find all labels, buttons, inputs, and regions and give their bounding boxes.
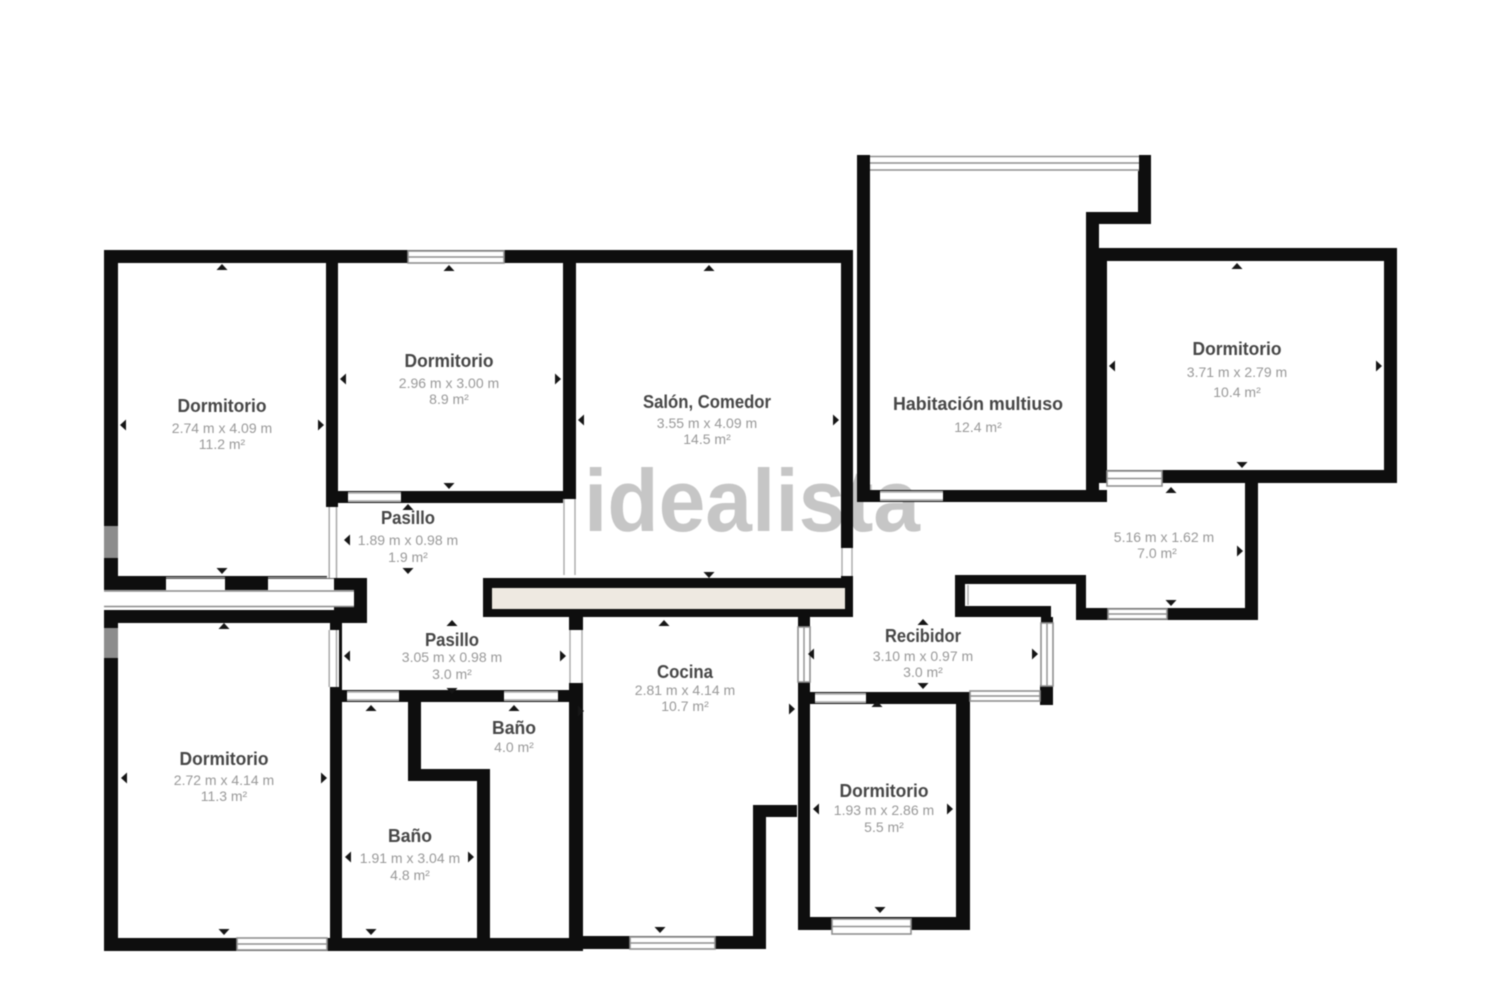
svg-text:Dormitorio: Dormitorio xyxy=(405,351,494,371)
svg-text:2.72 m x 4.14 m: 2.72 m x 4.14 m xyxy=(174,772,274,788)
svg-text:Pasillo: Pasillo xyxy=(425,630,479,650)
svg-text:11.3 m²: 11.3 m² xyxy=(201,788,248,804)
svg-text:Cocina: Cocina xyxy=(657,662,714,682)
svg-text:4.8 m²: 4.8 m² xyxy=(390,867,430,883)
svg-text:3.10 m x 0.97 m: 3.10 m x 0.97 m xyxy=(873,648,973,664)
svg-text:Pasillo: Pasillo xyxy=(381,508,435,528)
svg-text:Dormitorio: Dormitorio xyxy=(1193,339,1282,359)
svg-text:1.91 m x 3.04 m: 1.91 m x 3.04 m xyxy=(360,850,460,866)
svg-text:1.93 m x 2.86 m: 1.93 m x 2.86 m xyxy=(834,802,934,818)
svg-text:5.16 m x 1.62 m: 5.16 m x 1.62 m xyxy=(1114,529,1214,545)
svg-text:3.55 m x 4.09 m: 3.55 m x 4.09 m xyxy=(657,415,757,431)
svg-text:Baño: Baño xyxy=(388,826,432,846)
svg-text:8.9 m²: 8.9 m² xyxy=(429,391,469,407)
svg-text:Dormitorio: Dormitorio xyxy=(840,781,929,801)
svg-text:Recibidor: Recibidor xyxy=(885,626,961,646)
svg-text:Dormitorio: Dormitorio xyxy=(180,749,269,769)
svg-text:14.5 m²: 14.5 m² xyxy=(683,431,731,447)
svg-text:Habitación multiuso: Habitación multiuso xyxy=(893,394,1063,414)
svg-text:2.74 m x 4.09 m: 2.74 m x 4.09 m xyxy=(172,420,272,436)
svg-text:3.71 m x 2.79 m: 3.71 m x 2.79 m xyxy=(1187,364,1287,380)
svg-text:2.96 m x 3.00 m: 2.96 m x 3.00 m xyxy=(399,375,499,391)
svg-text:4.0 m²: 4.0 m² xyxy=(494,739,534,755)
svg-text:10.4 m²: 10.4 m² xyxy=(1213,384,1261,400)
svg-text:7.0 m²: 7.0 m² xyxy=(1137,545,1177,561)
svg-text:12.4 m²: 12.4 m² xyxy=(954,419,1002,435)
svg-text:10.7 m²: 10.7 m² xyxy=(661,698,709,714)
svg-text:3.05 m x 0.98 m: 3.05 m x 0.98 m xyxy=(402,649,502,665)
svg-text:1.89 m x 0.98 m: 1.89 m x 0.98 m xyxy=(358,532,458,548)
svg-text:3.0 m²: 3.0 m² xyxy=(903,664,943,680)
svg-text:5.5 m²: 5.5 m² xyxy=(864,819,904,835)
svg-text:Salón, Comedor: Salón, Comedor xyxy=(643,392,771,412)
svg-text:Dormitorio: Dormitorio xyxy=(178,396,267,416)
svg-text:3.0 m²: 3.0 m² xyxy=(432,666,472,682)
svg-text:Baño: Baño xyxy=(492,718,536,738)
svg-text:11.2 m²: 11.2 m² xyxy=(199,436,246,452)
svg-text:1.9 m²: 1.9 m² xyxy=(388,549,428,565)
svg-text:2.81 m x 4.14 m: 2.81 m x 4.14 m xyxy=(635,682,735,698)
